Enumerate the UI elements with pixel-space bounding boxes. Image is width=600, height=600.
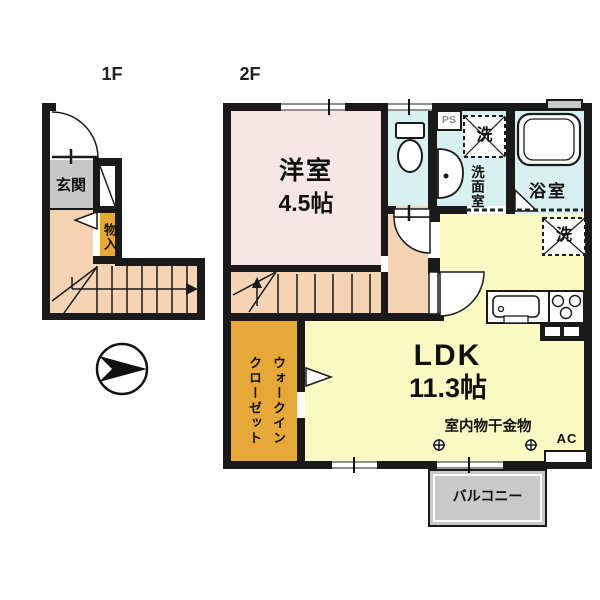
label-bathroom: 浴室 (517, 182, 579, 202)
label-entrance: 玄関 (47, 177, 95, 194)
wall-segment (428, 111, 437, 211)
window-symbol (281, 103, 345, 111)
floor-label-1f: 1F (92, 64, 132, 85)
wic-label-line1: ウォークイン (266, 342, 290, 460)
wall-segment (584, 103, 592, 469)
wall-segment (223, 461, 592, 469)
label-washroom: 洗面室 (464, 160, 484, 214)
wall-segment (297, 313, 305, 461)
entrance-step-edge (50, 208, 93, 210)
label-laundry-hardware: 室内物干金物 (428, 419, 548, 436)
label-walk-in-closet: ウォークイン クローゼット (238, 342, 290, 460)
balcony-door-window (437, 461, 503, 469)
north-arrow-icon (97, 344, 147, 394)
opening-hall-ldk (428, 222, 440, 258)
label-ldk-size: 11.3帖 (388, 373, 508, 404)
doorway-walk-in-closet (297, 392, 305, 418)
window-tick (468, 457, 470, 473)
wall-segment (506, 111, 515, 214)
wall-segment (437, 206, 467, 214)
wall-segment (388, 206, 396, 214)
wall-segment (42, 103, 50, 320)
hall-1f-floor (50, 210, 93, 263)
label-balcony: バルコニー (430, 488, 545, 504)
wall-segment (223, 103, 231, 469)
label-pipe-space: PS (437, 114, 461, 126)
window-tick (353, 457, 355, 473)
closet-1f (100, 166, 115, 206)
wic-label-line2: クローゼット (242, 342, 266, 460)
room-toilet (388, 111, 428, 206)
wall-segment (223, 313, 444, 321)
label-western-room: 洋室 (246, 157, 366, 186)
wall-segment (42, 313, 205, 320)
stairs-1f-floor (50, 263, 197, 313)
window-tick (408, 99, 410, 115)
wall-segment (93, 206, 122, 213)
floor-label-2f: 2F (230, 64, 270, 85)
bathroom-window (546, 99, 583, 110)
label-washer-ldk: 洗 (543, 227, 585, 245)
wall-segment (115, 258, 205, 266)
doorway-western-room (381, 256, 388, 272)
entrance-door-arc (52, 112, 98, 164)
room-western (231, 111, 381, 265)
wall-segment (197, 258, 205, 320)
label-washer-washroom: 洗 (464, 127, 505, 145)
stairs-2f-floor (231, 272, 381, 313)
wall-segment (381, 103, 388, 256)
label-western-room-size: 4.5帖 (246, 190, 366, 216)
window-tick (328, 99, 330, 115)
label-storage: 物入 (100, 216, 116, 258)
hall-2f-floor (388, 206, 428, 313)
window-symbol (388, 103, 432, 111)
wall-segment (223, 265, 381, 272)
label-ac: AC (548, 432, 586, 447)
label-ldk: LDK (390, 339, 505, 374)
floor-plan: 1F 2F 玄関 物入 洋室 4.5帖 LDK 11.3帖 ウォークイン クロー… (0, 0, 600, 600)
wall-segment (428, 258, 440, 274)
